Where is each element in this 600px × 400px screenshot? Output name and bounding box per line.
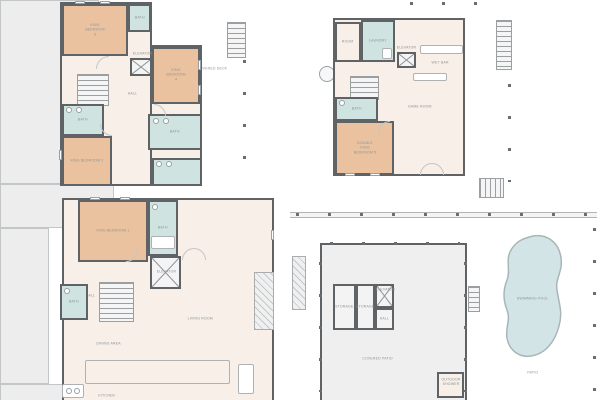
deck-columns (508, 52, 511, 182)
window (198, 85, 201, 95)
elevator-shaft (397, 52, 416, 68)
window (370, 173, 380, 176)
swimming-pool-shape (497, 232, 569, 360)
patio-columns (319, 262, 322, 392)
sink-fixture (166, 161, 172, 167)
room-king-bedroom-2: KING BEDROOM 2 (62, 136, 112, 186)
room-generic: ROOM (335, 22, 361, 62)
sink-fixture (156, 161, 162, 167)
room-label: HALL (380, 317, 389, 322)
room-label: BATH (69, 300, 79, 305)
window (345, 173, 355, 176)
deck-columns (593, 228, 596, 396)
sink-fixture (152, 204, 158, 210)
sink-fixture (163, 118, 169, 124)
room-hall: HALL (375, 308, 394, 330)
exterior-stairs (496, 20, 512, 70)
staircase (99, 282, 134, 322)
wet-bar-island (413, 73, 447, 81)
patio-columns (464, 262, 467, 392)
room-label: BATH (78, 118, 88, 123)
window (90, 197, 100, 200)
burner (74, 388, 80, 394)
room-label: KING BEDROOM 2 (71, 159, 104, 164)
sink-fixture (153, 118, 159, 124)
staircase (77, 74, 109, 106)
floor-plans-canvas: COVERED DECK KING BEDROOM 3 BATH ELEVATO… (0, 0, 600, 400)
deck-columns (410, 2, 505, 5)
kitchen-island (238, 364, 254, 394)
kitchen-counter (85, 360, 230, 384)
room-label: STORAGE (356, 305, 374, 310)
room-label: DOUBLE KING BEDROOM 5 (353, 141, 377, 155)
room-label: LAUNDRY (369, 39, 387, 44)
elevator-shaft (375, 284, 394, 308)
room-outdoor-shower (437, 372, 464, 398)
deck-stairs (227, 22, 246, 58)
room-bath: BATH (128, 4, 151, 32)
room-label: KING BEDROOM 3 (85, 23, 105, 37)
exterior-stairs (479, 178, 504, 198)
exterior-stairs (468, 286, 480, 312)
room-label: BATH (158, 226, 168, 231)
entry-stairs-hatched (292, 256, 306, 310)
elevator-shaft (130, 58, 152, 76)
room-label: ROOM (342, 40, 354, 45)
window (198, 60, 201, 70)
sink-fixture (76, 107, 82, 113)
room-label: BATH (135, 16, 145, 21)
window (120, 197, 130, 200)
wet-bar-counter (420, 45, 463, 54)
room-label: KING BEDROOM 4 (165, 68, 187, 82)
sink-fixture (64, 288, 70, 294)
window (59, 150, 62, 160)
window (271, 230, 274, 240)
burner (66, 388, 72, 394)
room-label: KING BEDROOM 1 (97, 229, 130, 234)
exterior-stairs-hatched (254, 272, 274, 330)
sink-fixture (66, 107, 72, 113)
room-storage: STORAGE (333, 284, 356, 330)
room-king-bedroom-4: KING BEDROOM 4 (152, 47, 200, 104)
deck (0, 228, 49, 384)
room-king-bedroom-3: KING BEDROOM 3 (62, 4, 128, 56)
washer-fixture (382, 48, 392, 59)
room-label: STORAGE (335, 305, 353, 310)
room-storage: STORAGE (356, 284, 375, 330)
room-label: BATH (170, 130, 180, 135)
window (75, 1, 85, 4)
window (100, 1, 110, 4)
patio-columns (330, 242, 460, 245)
room-label: BATH (352, 107, 362, 112)
elevator-shaft (150, 256, 181, 289)
railing-columns (296, 213, 592, 216)
sink-fixture (339, 100, 345, 106)
tub-fixture (151, 236, 175, 249)
